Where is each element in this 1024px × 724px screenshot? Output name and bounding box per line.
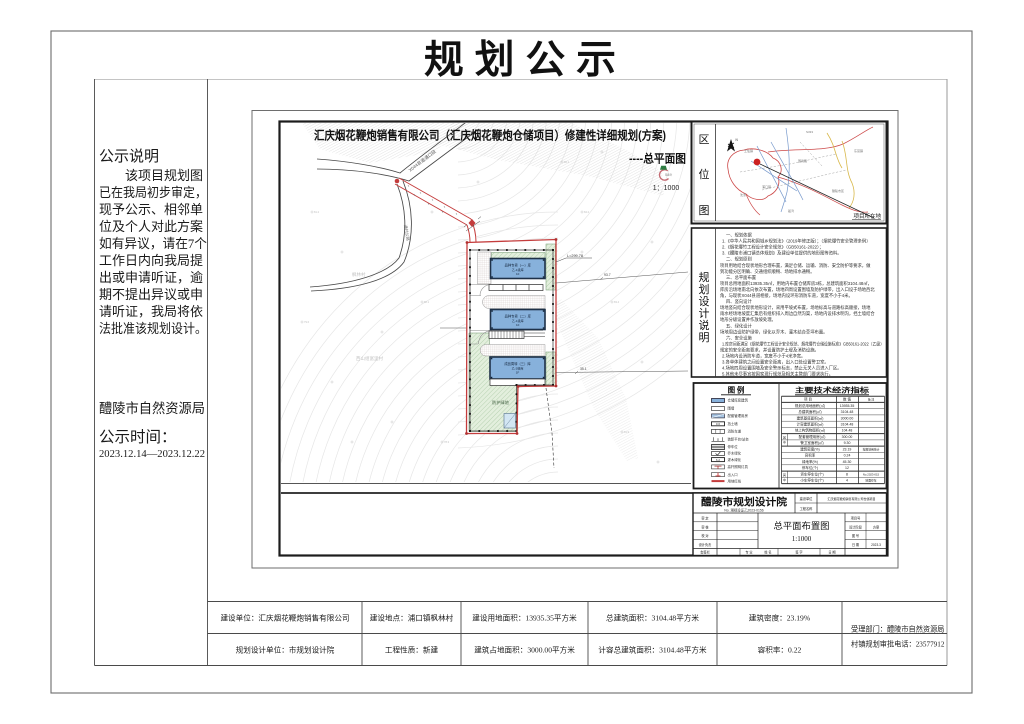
svg-text:13935.35: 13935.35 [840,404,855,408]
svg-text:4.场地四周设置围墙及安全警示标志，禁止无关人员进入厂区。: 4.场地四周设置围墙及安全警示标志，禁止无关人员进入厂区。 [722,365,842,372]
svg-text:规划设计单位：市规划设计院: 规划设计单位：市规划设计院 [236,645,335,655]
svg-text:中: 中 [783,440,786,445]
svg-text:公示时间：: 公示时间： [99,428,177,446]
svg-text:项目号: 项目号 [851,516,861,521]
svg-text:库房沿场地南北向依次布置，场地四周设置围墙及防护绿带，出入口: 库房沿场地南北向依次布置，场地四周设置围墙及防护绿带，出入口设于场地西北 [720,286,875,293]
svg-text:3.《醴陵市浦口镇总体规划》及建设单位提供的地形图等资料。: 3.《醴陵市浦口镇总体规划》及建设单位提供的地形图等资料。 [722,250,842,257]
svg-text:划: 划 [699,283,710,296]
svg-text:300.00: 300.00 [842,435,853,439]
svg-text:数 值: 数 值 [843,397,851,402]
svg-text:项目所在地: 项目所在地 [853,212,881,220]
svg-text:1.库房间距满足《烟花爆竹工程设计安全规范、烟花爆竹仓储设施: 1.库房间距满足《烟花爆竹工程设计安全规范、烟花爆竹仓储设施标准》GB50161… [722,340,884,347]
svg-text:用地红线: 用地红线 [728,479,742,484]
svg-text:方案: 方案 [873,524,880,529]
svg-text:请听证，我局将依: 请听证，我局将依 [99,304,203,319]
svg-text:78.3: 78.3 [444,440,450,444]
svg-text:场地周边设防护绿带，绿化以乔木、灌木结合草坪布置。: 场地周边设防护绿带，绿化以乔木、灌木结合草坪布置。 [720,328,827,335]
svg-text:枫林村: 枫林村 [352,271,366,278]
svg-text:84.2: 84.2 [584,210,590,214]
svg-text:81.9: 81.9 [624,430,630,434]
svg-text:计容总建筑面积：3104.48平方米: 计容总建筑面积：3104.48平方米 [598,645,707,655]
svg-text:汇庆烟花鞭炮销售有限公司（汇庆烟花鞭炮仓储项目）修建性详细规: 汇庆烟花鞭炮销售有限公司（汇庆烟花鞭炮仓储项目）修建性详细规划(方案) [314,128,666,143]
svg-text:明: 明 [699,331,710,344]
svg-text:其: 其 [783,436,786,440]
svg-text:灌木绿化: 灌木绿化 [728,457,742,462]
svg-text:国瓷路: 国瓷路 [798,158,807,163]
svg-text:出或申请听证，逾: 出或申请听证，逾 [99,270,203,285]
svg-text:仓储库房建筑: 仓储库房建筑 [728,398,749,403]
svg-text:王仙镇: 王仙镇 [744,148,753,153]
svg-text:雨水经场地坡度汇集后有组织排入周边自然沟渠，场地内设排水明沟: 雨水经场地坡度汇集后有组织排入周边自然沟渠，场地内设排水明沟，挡土墙结合 [720,310,875,317]
svg-text:2023.12.14—2023.12.22: 2023.12.14—2023.12.22 [99,449,205,460]
svg-text:总建筑面积：3104.48平方米: 总建筑面积：3104.48平方米 [606,613,699,623]
svg-text:西山组富里村: 西山组富里村 [356,355,383,362]
svg-text:到功能分区明确、交通组织顺畅、场地排水通畅。: 到功能分区明确、交通组织顺畅、场地排水通畅。 [720,268,815,275]
svg-text:设计阶段: 设计阶段 [849,524,863,529]
svg-text:1:1000: 1:1000 [792,535,812,543]
svg-text:受理部门：醴陵市自然资源局: 受理部门：醴陵市自然资源局 [851,625,944,634]
svg-text:81.2: 81.2 [314,210,320,214]
svg-text:停车位: 停车位 [728,444,739,449]
svg-text:9.30: 9.30 [844,441,851,445]
svg-text:小车停车位(个): 小车停车位(个) [800,478,823,483]
svg-text:2.场地内设消防车道，宽度不小于4米净宽。: 2.场地内设消防车道，宽度不小于4米净宽。 [722,353,805,360]
svg-text:会签栏: 会签栏 [700,550,710,555]
svg-text:8: 8 [846,472,848,476]
svg-text:4: 4 [846,479,848,483]
svg-text:规定的安全距离要求，并设置防护土堤及消防设施。: 规定的安全距离要求，并设置防护土堤及消防设施。 [720,347,819,354]
svg-text:品种专卖（二）库: 品种专卖（二）库 [505,314,532,319]
svg-text:防护绿地: 防护绿地 [492,399,510,406]
svg-text:位: 位 [699,167,710,181]
svg-text:货车停车位(个): 货车停车位(个) [800,471,823,476]
svg-text:建设单位：汇庆烟花鞭炮销售有限公司: 建设单位：汇庆烟花鞭炮销售有限公司 [220,613,349,623]
svg-text:2.《烟花爆竹工程设计安全规范》（GB50161-2022）: 2.《烟花爆竹工程设计安全规范》（GB50161-2022）； [722,244,823,251]
svg-text:容积率: 容积率 [805,453,816,458]
svg-text:地形分级设置并作放坡处理。: 地形分级设置并作放坡处理。 [720,316,776,323]
svg-text:公示说明: 公示说明 [99,148,159,165]
svg-text:主要技术经济指标: 主要技术经济指标 [795,386,869,395]
svg-text:1F: 1F [516,371,520,375]
svg-text:三、总平面布置: 三、总平面布置 [726,274,757,281]
svg-text:东富镇: 东富镇 [854,148,863,153]
svg-text:汇庆烟花鞭炮销售有限公司仓储项目: 汇庆烟花鞭炮销售有限公司仓储项目 [827,496,875,501]
svg-text:日 期: 日 期 [828,550,835,555]
svg-text:图 例: 图 例 [728,385,745,395]
svg-text:挡土墙: 挡土墙 [728,421,739,426]
svg-text:No. 湘规设证乙2023-0156: No. 湘规设证乙2023-0156 [724,508,764,513]
svg-text:浦口镇: 浦口镇 [762,184,771,189]
svg-text:规划总用地面积(㎡): 规划总用地面积(㎡) [795,403,825,408]
svg-text:建筑占地面积：3000.00平方米: 建筑占地面积：3000.00平方米 [474,645,575,655]
svg-text:3104.48: 3104.48 [841,410,854,414]
svg-text:角，与现状X044县道相接，场地内设环形消防车道，宽度不小于: 角，与现状X044县道相接，场地内设环形消防车道，宽度不小于4米。 [720,292,853,299]
svg-text:期不提出异议或申: 期不提出异议或申 [99,287,203,302]
svg-text:建筑密度(%): 建筑密度(%) [800,447,819,452]
svg-text:0.24: 0.24 [844,454,851,458]
svg-text:审 核: 审 核 [701,524,709,529]
svg-text:80.1: 80.1 [424,300,430,304]
svg-text:如有异议，请在7个: 如有异议，请在7个 [99,236,207,251]
svg-text:已在我局初步审定，: 已在我局初步审定， [99,185,207,200]
svg-text:备 注: 备 注 [868,398,875,402]
svg-text:5.其他未尽事宜按国家现行规范及相关主管部门要求执行。: 5.其他未尽事宜按国家现行规范及相关主管部门要求执行。 [722,371,833,378]
svg-text:警卫室面积(㎡): 警卫室面积(㎡) [800,440,823,445]
svg-text:其: 其 [783,473,786,477]
svg-text:日 期: 日 期 [852,542,859,547]
svg-text:1F: 1F [516,323,520,327]
svg-text:79.6: 79.6 [304,320,310,324]
svg-text:93.7: 93.7 [604,273,611,277]
svg-text:区: 区 [699,134,710,146]
svg-text:3104.48: 3104.48 [841,423,854,427]
svg-text:----总平面图: ----总平面图 [629,152,686,166]
svg-text:醴陵市自然资源局: 醴陵市自然资源局 [99,400,205,416]
svg-text:45.30: 45.30 [843,460,852,464]
svg-text:86.1: 86.1 [564,160,570,164]
svg-text:专 业: 专 业 [745,550,752,555]
svg-text:法批准该规划设计。: 法批准该规划设计。 [99,321,207,336]
svg-text:1：1000: 1：1000 [653,185,680,192]
svg-text:围墙: 围墙 [728,406,735,411]
svg-text:高杆照明灯具: 高杆照明灯具 [728,464,749,469]
svg-text:绿地率(%): 绿地率(%) [802,459,818,464]
svg-text:图: 图 [699,204,710,217]
svg-text:场地竖向结合现状地形设计，采用平坡式布置，场地标高与道路标高: 场地竖向结合现状地形设计，采用平坡式布置，场地标高与道路标高顺接，场地 [720,304,871,311]
svg-text:23.19: 23.19 [843,448,852,452]
svg-text:地面停车: 地面停车 [865,479,876,483]
svg-text:现予公示、相邻单: 现予公示、相邻单 [99,202,203,217]
svg-text:3.各单体建筑之间设置安全距离，出入口处设置警卫室。: 3.各单体建筑之间设置安全距离，出入口处设置警卫室。 [722,359,829,366]
svg-text:按规划用地计: 按规划用地计 [863,448,880,452]
svg-text:成品周转（三）库: 成品周转（三）库 [504,361,531,366]
svg-text:出入口: 出入口 [728,472,738,477]
svg-text:姓 名: 姓 名 [764,550,771,555]
svg-text:工作日内向我局提: 工作日内向我局提 [99,253,203,268]
svg-text:六、安全设施: 六、安全设施 [726,334,752,341]
svg-text:工程性质：新建: 工程性质：新建 [385,645,439,655]
svg-text:计容建筑面积(㎡): 计容建筑面积(㎡) [797,422,824,427]
svg-text:6.2: 6.2 [716,458,721,462]
svg-text:35.1: 35.1 [580,367,587,371]
svg-text:五、绿化设计: 五、绿化设计 [726,322,752,329]
svg-text:设计负责: 设计负责 [699,542,712,547]
svg-text:装卸平台/站台: 装卸平台/站台 [728,437,750,442]
svg-text:沈潭: 沈潭 [740,192,746,197]
svg-text:中: 中 [783,477,786,482]
svg-text:签 字: 签 字 [795,550,802,555]
svg-text:该项目规划图: 该项目规划图 [125,168,203,183]
svg-text:No.2023-015: No.2023-015 [863,472,880,476]
svg-text:乔木绿化: 乔木绿化 [728,451,742,456]
svg-text:说: 说 [699,318,710,332]
svg-text:总平面布置图: 总平面布置图 [774,520,830,531]
svg-text:工程名称: 工程名称 [800,506,814,511]
svg-text:地上构筑物面积(㎡): 地上构筑物面积(㎡) [795,428,825,433]
svg-text:村镇规划审批电话：23577912: 村镇规划审批电话：23577912 [851,640,945,649]
svg-text:品种专卖（一）库: 品种专卖（一）库 [505,263,532,268]
svg-text:图 号: 图 号 [852,533,859,538]
svg-text:3000.00: 3000.00 [841,416,854,420]
svg-text:四、竖向设计: 四、竖向设计 [726,298,752,305]
svg-text:配套管理用房: 配套管理用房 [728,413,749,418]
svg-text:项目用地结合现状地形合理布置，满足仓储、运输、消防、安全防护: 项目用地结合现状地形合理布置，满足仓储、运输、消防、安全防护等要求，做 [720,262,871,269]
svg-text:0.6: 0.6 [716,422,721,426]
svg-text:二、规划原则: 二、规划原则 [726,256,752,263]
svg-text:规: 规 [699,270,710,284]
svg-text:配套管理用房(㎡): 配套管理用房(㎡) [799,434,826,439]
svg-text:建设地点：浦口镇枫林村: 建设地点：浦口镇枫林村 [370,613,454,623]
svg-text:校 对: 校 对 [701,533,709,538]
svg-text:S333: S333 [806,130,813,134]
svg-text:1.《中华人民共和国城乡规划法》（2019年修正版）；（烟花: 1.《中华人民共和国城乡规划法》（2019年修正版）；（烟花爆竹安全管理条例） [722,238,871,245]
svg-text:一、规划依据: 一、规划依据 [726,232,752,239]
svg-text:1F: 1F [516,272,520,276]
svg-text:12: 12 [845,466,849,470]
svg-text:船湾: 船湾 [788,208,794,213]
svg-text:L=299.78: L=299.78 [567,254,583,258]
svg-text:醴陵市区: 醴陵市区 [832,188,844,193]
svg-text:规 划 公 示: 规 划 公 示 [424,39,616,82]
svg-text:83.4: 83.4 [614,300,620,304]
svg-text:项 目: 项 目 [804,397,812,402]
svg-text:2023.3: 2023.3 [871,543,881,547]
svg-text:消防车道: 消防车道 [728,429,742,434]
svg-text:建设单位: 建设单位 [800,496,814,501]
svg-text:建筑密度：23.19%: 建筑密度：23.19% [749,613,811,623]
svg-text:醴陵市规划设计院: 醴陵市规划设计院 [701,496,788,509]
svg-text:位及个人对此方案: 位及个人对此方案 [99,219,203,234]
svg-text:建设用地面积：13935.35平方米: 建设用地面积：13935.35平方米 [472,613,577,623]
svg-text:停车位(个): 停车位(个) [802,465,818,470]
svg-text:计: 计 [699,307,710,320]
svg-text:104.48: 104.48 [842,429,853,433]
svg-text:项目总用地面积13935.35㎡，用地内布置仓储库房3栋，总: 项目总用地面积13935.35㎡，用地内布置仓储库房3栋，总建筑面积3104.4… [720,280,872,287]
svg-text:指北针: 指北针 [665,173,673,177]
svg-text:审 定: 审 定 [701,516,709,521]
svg-text:建筑基底面积(㎡): 建筑基底面积(㎡) [797,415,824,420]
svg-text:总建筑面积(㎡): 总建筑面积(㎡) [798,409,821,414]
svg-text:容积率：0.22: 容积率：0.22 [758,645,802,655]
svg-text:设: 设 [699,295,710,308]
